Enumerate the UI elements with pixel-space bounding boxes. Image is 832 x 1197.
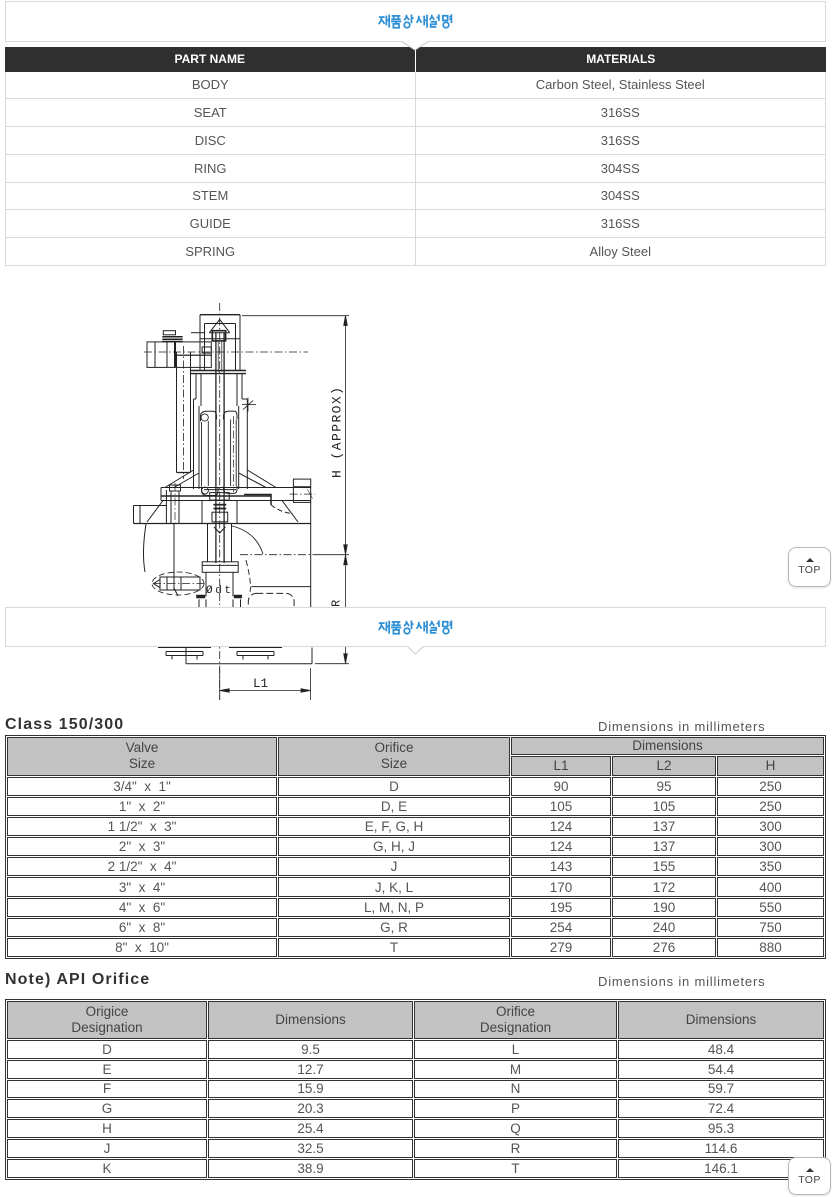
svg-text:Ødt: Ødt [206,585,231,597]
svg-text:R: R [330,600,344,607]
svg-text:L1: L1 [253,677,268,691]
svg-text:H (APPROX): H (APPROX) [330,387,345,478]
